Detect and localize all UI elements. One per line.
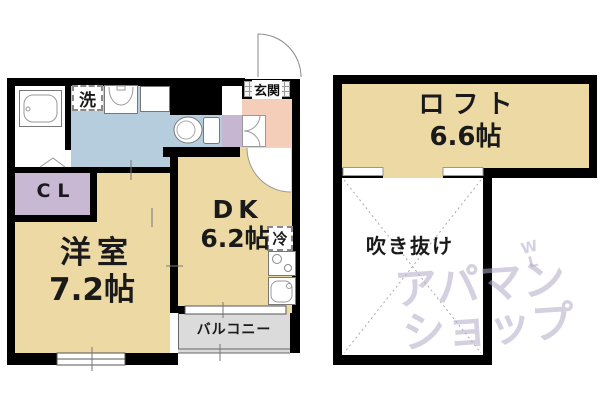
- dk-room-name: DK: [178, 197, 292, 223]
- dk-room-size: 6.2帖: [176, 226, 294, 252]
- wall-left-building-right: [292, 79, 300, 313]
- laundry-box: 洗: [72, 85, 103, 111]
- wall-left-building-bottom: [7, 353, 178, 365]
- room-western-upper: [97, 173, 170, 222]
- floor-plan: 洗 冷 玄関 CL 洋室 7.2帖 DK 6.2帖 バルコニー ロフト 6.6帖…: [0, 0, 600, 400]
- entrance-mat: 玄関: [242, 79, 292, 99]
- wall-closet-bottom: [7, 215, 97, 222]
- entrance-area: [242, 99, 292, 147]
- room-dk-upper-strip: [240, 147, 292, 157]
- room-toilet: [170, 115, 222, 147]
- wall-bath-right: [65, 86, 71, 150]
- western-room-name: 洋室: [15, 237, 173, 270]
- balcony-label: バルコニー: [178, 323, 290, 338]
- loft-room-name: ロフト: [342, 92, 589, 119]
- entrance-door-arc-icon: [258, 34, 301, 77]
- wall-toilet-bottom: [163, 147, 240, 157]
- room-bathroom: [15, 86, 65, 167]
- shoe-cabinet: [222, 115, 242, 147]
- wall-left-building-top: [7, 78, 245, 86]
- wall-loft-bottom: [342, 168, 589, 178]
- loft-room-size: 6.6帖: [342, 124, 589, 151]
- closet-label: CL: [15, 182, 91, 202]
- laundry-label: 洗: [79, 86, 96, 111]
- wall-balcony-right: [290, 313, 300, 353]
- wall-dk-window-stub: [178, 306, 185, 314]
- wall-loft-top: [333, 75, 597, 84]
- entrance-label: 玄関: [252, 80, 282, 99]
- wall-toilet-block: [170, 86, 222, 115]
- wall-loft-right: [589, 75, 597, 178]
- wall-loft-left: [333, 75, 342, 365]
- watermark-line2: ショップ: [400, 287, 576, 361]
- western-room-size: 7.2帖: [8, 274, 176, 307]
